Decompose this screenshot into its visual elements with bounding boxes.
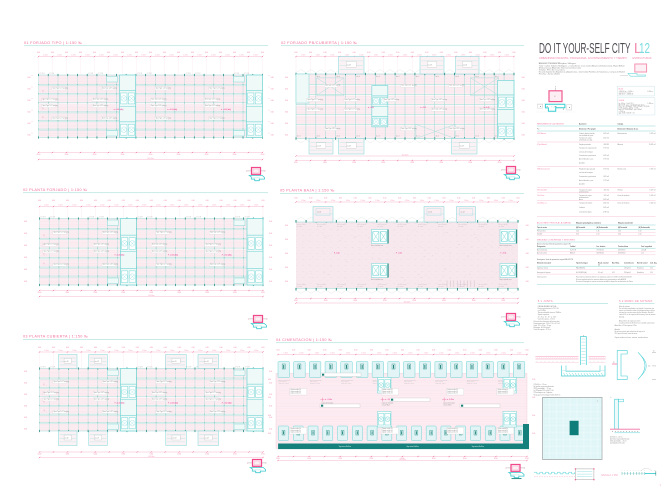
svg-text:Span Type 1-DT spacing: Span Type 1-DT spacing — [210, 381, 225, 383]
svg-text:3.00: 3.00 — [526, 239, 529, 241]
svg-text:■: ■ — [540, 106, 541, 108]
svg-text:6.00: 6.00 — [324, 198, 327, 200]
svg-text:1.50m: 1.50m — [253, 55, 258, 57]
svg-text:con losa de hormigon: con losa de hormigon — [579, 151, 593, 153]
svg-text:05 PLANTA BAJA | 1:150 ‰: 05 PLANTA BAJA | 1:150 ‰ — [280, 189, 335, 193]
svg-text:1.025 m2: 1.025 m2 — [603, 155, 609, 157]
svg-text:6.00: 6.00 — [454, 52, 457, 54]
svg-text:■: ■ — [555, 106, 556, 108]
svg-text:1.025 m2: 1.025 m2 — [603, 133, 609, 135]
svg-text:6.00: 6.00 — [206, 200, 209, 202]
svg-text:Span Type 1-DT spacing: Span Type 1-DT spacing — [205, 99, 220, 101]
svg-text:6.00: 6.00 — [339, 198, 342, 200]
svg-text:con acabado de grava: con acabado de grava — [579, 135, 593, 137]
svg-text:6.00: 6.00 — [247, 52, 250, 54]
svg-text:6.00: 6.00 — [205, 454, 209, 456]
svg-text:1.50m: 1.50m — [375, 200, 380, 202]
svg-text:275 kg/m3: 275 kg/m3 — [624, 267, 631, 269]
svg-text:Span Type 1-DT spacing: Span Type 1-DT spacing — [210, 232, 225, 234]
svg-text:Span Type 1-DT spacing: Span Type 1-DT spacing — [205, 398, 220, 400]
svg-text:3.00: 3.00 — [285, 112, 288, 114]
svg-text:DL: 45kN: DL: 45kN — [458, 226, 463, 228]
svg-text:3.00: 3.00 — [27, 89, 30, 91]
svg-text:3.00: 3.00 — [269, 245, 272, 247]
svg-text:6.00: 6.00 — [324, 300, 328, 302]
svg-text:3.00: 3.00 — [24, 417, 27, 419]
svg-text:6.00: 6.00 — [457, 198, 460, 200]
svg-text:4 T 12 R: 4 T 12 R — [234, 73, 239, 75]
svg-text:3.00: 3.00 — [269, 417, 272, 419]
svg-text:4 T 12 R: 4 T 12 R — [186, 73, 191, 75]
svg-text:DL: 45kN: DL: 45kN — [337, 226, 342, 228]
svg-text:Span Type 1-DT spacing: Span Type 1-DT spacing — [210, 411, 225, 413]
svg-text:4 T 12 R: 4 T 12 R — [89, 216, 94, 218]
svg-text:6.00: 6.00 — [276, 350, 279, 352]
svg-text:ab c d: ab c d — [455, 76, 459, 78]
svg-text:6.00: 6.00 — [121, 52, 124, 54]
svg-text:1.50m: 1.50m — [226, 205, 231, 207]
svg-text:Span Type 1-DT spacing: Span Type 1-DT spacing — [152, 244, 167, 246]
svg-text:6.00: 6.00 — [122, 454, 126, 456]
svg-text:Zonas de maderas: Zonas de maderas — [618, 195, 630, 197]
svg-text:6.00: 6.00 — [440, 52, 443, 54]
svg-text:6.00: 6.00 — [122, 292, 126, 294]
svg-text:■: ■ — [569, 107, 570, 109]
svg-text:6.00: 6.00 — [417, 350, 420, 352]
svg-text:1.50m: 1.50m — [58, 350, 63, 352]
svg-text:3.00: 3.00 — [269, 394, 272, 396]
svg-text:DL: 45kN: DL: 45kN — [418, 226, 423, 228]
svg-text:Span Type 1-DT spacing: Span Type 1-DT spacing — [152, 392, 167, 394]
svg-text:6.00: 6.00 — [65, 52, 68, 54]
svg-text:1.50: 1.50 — [44, 392, 46, 395]
svg-text:1.50m: 1.50m — [71, 55, 76, 57]
svg-text:ESCALA 1:250: ESCALA 1:250 — [602, 473, 619, 477]
svg-text:DL: 45kN: DL: 45kN — [337, 286, 342, 288]
svg-text:DL: 45kN: DL: 45kN — [398, 286, 403, 288]
svg-text:6.00: 6.00 — [121, 154, 125, 156]
svg-text:1.50m: 1.50m — [58, 205, 63, 207]
svg-text:3.00: 3.00 — [269, 221, 272, 223]
svg-text:1.50m: 1.50m — [212, 205, 217, 207]
svg-text:3.00: 3.00 — [532, 397, 535, 399]
svg-text:1.35: 1.35 — [597, 231, 600, 233]
svg-text:6.00: 6.00 — [220, 200, 223, 202]
svg-text:02 FORJADO PB/CUBIERTA | 1:150: 02 FORJADO PB/CUBIERTA | 1:150 ‰ — [281, 41, 357, 45]
svg-text:4 T 12 R: 4 T 12 R — [49, 73, 54, 75]
svg-text:25/25 profundid v – 25 cm: 25/25 profundid v – 25 cm — [610, 441, 627, 443]
svg-text:1.50m: 1.50m — [225, 55, 230, 57]
svg-text:xxx.12f: xxx.12f — [172, 438, 177, 440]
svg-text:Span Type 1-DT spacing: Span Type 1-DT spacing — [94, 392, 109, 394]
svg-text:680.325: 680.325 — [604, 144, 609, 146]
svg-text:6.00: 6.00 — [398, 198, 401, 200]
svg-text:1.50m: 1.50m — [113, 55, 118, 57]
svg-text:4 T 12 R: 4 T 12 R — [88, 73, 93, 75]
svg-text:⚑ -3.45m: ⚑ -3.45m — [447, 398, 455, 401]
svg-text:1.50m: 1.50m — [449, 200, 454, 202]
svg-text:■: ■ — [563, 109, 564, 111]
svg-text:Span Type 1-DT spacing: Span Type 1-DT spacing — [210, 264, 225, 266]
svg-text:03 PLANTA CUBIERTA | 1:150 ‰: 03 PLANTA CUBIERTA | 1:150 ‰ — [23, 335, 88, 339]
svg-text:Span Type 1-DT spacing: Span Type 1-DT spacing — [432, 109, 447, 111]
svg-text:ESTRUCTURAS: ESTRUCTURAS — [633, 56, 652, 60]
svg-text:4 T 12 R: 4 T 12 R — [138, 216, 143, 218]
svg-text:6.00: 6.00 — [354, 350, 357, 352]
svg-text:3.00: 3.00 — [285, 253, 288, 255]
svg-text:6.00: 6.00 — [135, 52, 138, 54]
svg-text:ab c d: ab c d — [317, 136, 321, 138]
svg-text:6.00: 6.00 — [66, 292, 70, 294]
svg-text:4 T 12 R: 4 T 12 R — [147, 216, 152, 218]
svg-text:275 N/mm2: 275 N/mm2 — [597, 250, 605, 252]
svg-text:Span Type 1-DT spacing: Span Type 1-DT spacing — [209, 117, 224, 119]
svg-text:1.50m: 1.50m — [240, 205, 245, 207]
svg-text:3.00: 3.00 — [269, 383, 272, 385]
svg-text:ab c d: ab c d — [475, 136, 479, 138]
svg-text:Coef. Seg.: Coef. Seg. — [650, 262, 657, 264]
svg-text:(a) 25/pedra 25% calid: (a) 25/pedra 25% calid — [610, 443, 625, 445]
svg-text:6.00: 6.00 — [516, 198, 519, 200]
svg-text:DL: 45kN: DL: 45kN — [499, 286, 504, 288]
svg-text:Span Type 1-DT spacing: Span Type 1-DT spacing — [151, 105, 166, 107]
svg-text:Span Type 1-DT spacing: Span Type 1-DT spacing — [156, 381, 171, 383]
svg-text:Span Type 1-DT spacing: Span Type 1-DT spacing — [43, 244, 58, 246]
svg-text:6.00: 6.00 — [164, 200, 167, 202]
svg-text:1.50m: 1.50m — [72, 350, 77, 352]
svg-text:6.00: 6.00 — [233, 454, 237, 456]
svg-text:6.00: 6.00 — [192, 200, 195, 202]
svg-text:3.00: 3.00 — [27, 77, 30, 79]
svg-text:Zonas de maderas: Zonas de maderas — [618, 203, 630, 205]
svg-text:xxx.12f: xxx.12f — [95, 361, 100, 363]
svg-text:ACCIONES: PESOS A LA CARGA: ACCIONES: PESOS A LA CARGA — [537, 222, 571, 225]
svg-text:1.025 m2: 1.025 m2 — [603, 207, 609, 209]
svg-text:3.00: 3.00 — [285, 123, 288, 125]
svg-text:1.50m: 1.50m — [183, 55, 188, 57]
svg-text:DL: 45kN: DL: 45kN — [418, 286, 423, 288]
svg-text:1.50m: 1.50m — [301, 55, 306, 57]
svg-text:6.00: 6.00 — [150, 292, 154, 294]
svg-text:3.00: 3.00 — [269, 281, 272, 283]
svg-text:6.00: 6.00 — [234, 200, 237, 202]
svg-text:6.00: 6.00 — [122, 347, 125, 349]
svg-text:uniformado a los kgs: uniformado a los kgs — [579, 140, 593, 142]
svg-text:25: 25 — [613, 362, 615, 364]
svg-text:Span Type 1-DT spacing: Span Type 1-DT spacing — [54, 411, 69, 413]
svg-text:Span Type 1-DT spacing: Span Type 1-DT spacing — [156, 411, 171, 413]
svg-text:ab c d: ab c d — [396, 76, 400, 78]
svg-text:Span Type 1-DT spacing: Span Type 1-DT spacing — [205, 105, 220, 107]
svg-text:1.50m: 1.50m — [57, 55, 62, 57]
svg-text:Traspaso de cargas: Traspaso de cargas — [579, 137, 592, 139]
svg-text:04 CIMENTACION | 1:150 ‰: 04 CIMENTACION | 1:150 ‰ — [276, 338, 332, 342]
svg-text:6.00: 6.00 — [463, 350, 466, 352]
svg-text:105.00m: 105.00m — [402, 154, 409, 156]
svg-text:Traspaso de cargas: Traspaso de cargas — [579, 195, 592, 197]
svg-text:1.50m: 1.50m — [346, 353, 351, 355]
svg-text:xxx.12f: xxx.12f — [347, 65, 352, 67]
svg-text:3.00: 3.00 — [269, 406, 272, 408]
svg-text:Span Type 1-DT spacing: Span Type 1-DT spacing — [384, 99, 399, 101]
svg-text:1.50m: 1.50m — [508, 200, 513, 202]
svg-text:6.00: 6.00 — [383, 300, 387, 302]
svg-text:6.00: 6.00 — [472, 300, 476, 302]
svg-text:6.00: 6.00 — [247, 347, 250, 349]
svg-text:3.00: 3.00 — [24, 233, 27, 235]
svg-text:6.00: 6.00 — [234, 347, 237, 349]
svg-text:6.00: 6.00 — [150, 347, 153, 349]
svg-text:1.025 m2: 1.025 m2 — [603, 199, 609, 201]
svg-text:09.2 Desvielle: 09.2 Desvielle — [537, 190, 547, 192]
svg-text:4 T 12 R: 4 T 12 R — [99, 216, 104, 218]
svg-text:3.00: 3.00 — [27, 100, 30, 102]
svg-text:HL-150/B/20 (db): HL-150/B/20 (db) — [576, 272, 587, 274]
svg-text:1.50m: 1.50m — [299, 353, 304, 355]
svg-text:6.00: 6.00 — [94, 347, 97, 349]
svg-text:6.00: 6.00 — [309, 52, 312, 54]
svg-text:6.00: 6.00 — [178, 200, 181, 202]
svg-text:xxx.12f: xxx.12f — [347, 146, 352, 148]
svg-text:1.50m: 1.50m — [254, 205, 259, 207]
svg-text:Span Type 1-DT spacing: Span Type 1-DT spacing — [42, 99, 57, 101]
svg-text:4 T 12 R: 4 T 12 R — [235, 216, 240, 218]
svg-text:1.50m: 1.50m — [408, 353, 413, 355]
svg-text:6.00: 6.00 — [510, 350, 513, 352]
svg-text:6.00: 6.00 — [368, 198, 371, 200]
svg-text:1.50m: 1.50m — [390, 200, 395, 202]
svg-text:Span Type 1-DT spacing: Span Type 1-DT spacing — [42, 105, 57, 107]
svg-text:Span Type 1-DT spacing: Span Type 1-DT spacing — [401, 128, 416, 130]
svg-text:1.50m: 1.50m — [114, 350, 119, 352]
svg-text:6.00: 6.00 — [66, 200, 69, 202]
svg-text:4 T 12 R: 4 T 12 R — [147, 73, 152, 75]
svg-text:Oficinas: Oficinas — [618, 190, 623, 192]
svg-text:⚑ -3.45m: ⚑ -3.45m — [325, 398, 333, 401]
svg-text:1.50m: 1.50m — [72, 205, 77, 207]
svg-text:1.50m: 1.50m — [156, 350, 161, 352]
svg-text:6.00: 6.00 — [206, 347, 209, 349]
svg-text:plausible: plausible — [579, 162, 585, 164]
svg-text:6.00: 6.00 — [52, 200, 55, 202]
svg-text:6.00: 6.00 — [177, 292, 181, 294]
svg-text:6.00: 6.00 — [38, 454, 42, 456]
svg-text:6.00: 6.00 — [38, 292, 42, 294]
svg-text:1.50m: 1.50m — [316, 200, 321, 202]
svg-text:6.00: 6.00 — [498, 52, 501, 54]
svg-text:1.50m: 1.50m — [315, 353, 320, 355]
svg-text:3.00: 3.00 — [269, 269, 272, 271]
svg-text:3.00: 3.00 — [522, 135, 525, 137]
svg-text:ab c d: ab c d — [436, 76, 440, 78]
svg-text:Span Type 1-DT spacing: Span Type 1-DT spacing — [102, 117, 117, 119]
svg-text:6.00: 6.00 — [396, 52, 399, 54]
svg-text:6.00: 6.00 — [150, 200, 153, 202]
svg-text:3.00: 3.00 — [285, 100, 288, 102]
svg-text:xxx.12f: xxx.12f — [205, 361, 210, 363]
svg-text:3.00: 3.00 — [24, 257, 27, 259]
svg-text:1.50m: 1.50m — [127, 55, 132, 57]
svg-text:Fecha: Junio 2016: Fecha: Junio 2016 — [539, 73, 560, 75]
svg-text:1.50: 1.50 — [44, 262, 46, 265]
svg-text:Span Type 1-DT spacing: Span Type 1-DT spacing — [156, 232, 171, 234]
svg-text:1.50m: 1.50m — [479, 200, 484, 202]
svg-text:qad: 25.66 · 625 kN · m2: qad: 25.66 · 625 kN · m2 — [619, 113, 635, 115]
svg-text:Span Type 1-DT spacing: Span Type 1-DT spacing — [151, 99, 166, 101]
svg-text:6.00: 6.00 — [178, 347, 181, 349]
svg-text:Traspaso de madera: Traspaso de madera — [579, 203, 592, 205]
svg-text:6.00: 6.00 — [382, 52, 385, 54]
svg-text:RESUMEN DE LA SESION: RESUMEN DE LA SESION — [537, 123, 564, 126]
svg-text:B500-S: B500-S — [570, 253, 575, 255]
svg-text:3.00: 3.00 — [269, 257, 272, 259]
svg-text:1.50m: 1.50m — [99, 55, 104, 57]
svg-text:6.00: 6.00 — [323, 350, 326, 352]
svg-text:DO IT YOUR-SELF CITY: DO IT YOUR-SELF CITY — [539, 40, 631, 57]
svg-text:3.00: 3.00 — [532, 415, 535, 417]
svg-text:Traspaso de carga por pale: Traspaso de carga por pale — [579, 148, 597, 150]
svg-text:Hormigon de limpieza: Hormigon de limpieza — [537, 272, 551, 274]
svg-text:3.00: 3.00 — [526, 281, 529, 283]
svg-text:3.00: 3.00 — [522, 100, 525, 102]
svg-text:6.00: 6.00 — [525, 458, 529, 460]
svg-text:3.00: 3.00 — [285, 77, 288, 79]
svg-text:1.50m: 1.50m — [420, 200, 425, 202]
svg-text:6.00: 6.00 — [93, 154, 97, 156]
svg-text:4 T 12 R: 4 T 12 R — [196, 216, 201, 218]
svg-text:Span Type 1-DT spacing: Span Type 1-DT spacing — [480, 99, 495, 101]
svg-text:Forjado de vigas por pale: Forjado de vigas por pale — [579, 168, 595, 170]
svg-text:1.50m: 1.50m — [439, 353, 444, 355]
svg-text:Designacion: Designacion — [537, 246, 546, 248]
svg-text:Span Type 1-DT spacing: Span Type 1-DT spacing — [156, 264, 171, 266]
svg-text:1.50m: 1.50m — [284, 353, 289, 355]
svg-text:6.00: 6.00 — [261, 52, 264, 54]
svg-text:3.00: 3.00 — [271, 100, 274, 102]
svg-text:1.50: 1.50 — [650, 272, 653, 274]
svg-text:6.00: 6.00 — [525, 350, 528, 352]
svg-text:DL: 45kN: DL: 45kN — [357, 286, 362, 288]
svg-text:DL: 45kN: DL: 45kN — [438, 226, 443, 228]
svg-text:3.00: 3.00 — [285, 281, 288, 283]
svg-text:6.00: 6.00 — [512, 52, 515, 54]
svg-text:Span Type 1-DT spacing: Span Type 1-DT spacing — [205, 392, 220, 394]
svg-text:6.00: 6.00 — [385, 350, 388, 352]
svg-text:DL: 45kN: DL: 45kN — [478, 226, 483, 228]
svg-text:6.00: 6.00 — [177, 454, 181, 456]
svg-text:3.00: 3.00 — [268, 415, 271, 417]
svg-text:xxx.12f: xxx.12f — [317, 146, 322, 148]
svg-text:6.00: 6.00 — [502, 198, 505, 200]
svg-text:1.50m: 1.50m — [240, 350, 245, 352]
svg-text:1.50m: 1.50m — [170, 205, 175, 207]
svg-text:1.50m: 1.50m — [361, 353, 366, 355]
svg-text:ab c d: ab c d — [455, 136, 459, 138]
svg-text:1.50m: 1.50m — [374, 55, 379, 57]
svg-text:1.50m: 1.50m — [86, 350, 91, 352]
svg-text:3.00: 3.00 — [268, 397, 271, 399]
svg-text:6.00: 6.00 — [177, 154, 181, 156]
svg-text:ab c d: ab c d — [356, 76, 360, 78]
svg-text:6.00: 6.00 — [80, 347, 83, 349]
svg-text:4 T 12 R: 4 T 12 R — [235, 366, 240, 368]
svg-text:0.55: 0.55 — [612, 272, 615, 274]
svg-text:xxx.12f: xxx.12f — [64, 361, 69, 363]
svg-text:Span Type 1-DT spacing: Span Type 1-DT spacing — [152, 250, 167, 252]
svg-text:DL: 45kN: DL: 45kN — [438, 286, 443, 288]
svg-text:1.50m: 1.50m — [86, 205, 91, 207]
svg-text:1.00: 1.00 — [639, 233, 642, 235]
svg-text:3.00: 3.00 — [271, 112, 274, 114]
svg-text:6.00: 6.00 — [233, 292, 237, 294]
svg-text:500 N/mm2: 500 N/mm2 — [597, 253, 605, 255]
svg-text:4 T 12 R: 4 T 12 R — [245, 216, 250, 218]
svg-text:3.00: 3.00 — [24, 281, 27, 283]
svg-text:4 T 12 R: 4 T 12 R — [186, 216, 191, 218]
svg-text:6.00: 6.00 — [501, 300, 505, 302]
svg-text:1.50m: 1.50m — [155, 55, 160, 57]
svg-text:6.00: 6.00 — [324, 52, 327, 54]
svg-text:xxx.12f: xxx.12f — [428, 65, 433, 67]
svg-text:6.00: 6.00 — [442, 300, 446, 302]
svg-text:6.00: 6.00 — [108, 200, 111, 202]
svg-text:6.00: 6.00 — [463, 458, 467, 460]
svg-text:3.00: 3.00 — [285, 135, 288, 137]
svg-text:6.00: 6.00 — [192, 347, 195, 349]
svg-text:1.50m: 1.50m — [446, 55, 451, 57]
svg-text:q = 25 kN/m: q = 25 kN/m — [538, 310, 547, 312]
svg-text:6.00: 6.00 — [294, 198, 297, 200]
svg-text:Span Type 1-DT spacing: Span Type 1-DT spacing — [102, 87, 117, 89]
svg-text:6.00: 6.00 — [338, 52, 341, 54]
svg-text:min: min — [648, 366, 650, 368]
svg-text:ab c d: ab c d — [416, 76, 420, 78]
svg-text:6.00: 6.00 — [205, 52, 208, 54]
svg-text:1.50m: 1.50m — [301, 200, 306, 202]
svg-text:MEDIDAS CONCRETAS Y SESIONES: MEDIDAS CONCRETAS Y SESIONES — [537, 239, 575, 242]
svg-text:1.025 m2: 1.025 m2 — [603, 176, 609, 178]
svg-text:3.00: 3.00 — [24, 429, 27, 431]
svg-text:6.00: 6.00 — [442, 198, 445, 200]
svg-text:1.50m: 1.50m — [212, 350, 217, 352]
svg-text:6.00: 6.00 — [309, 198, 312, 200]
svg-text:1.50m: 1.50m — [470, 353, 475, 355]
svg-text:6.00: 6.00 — [339, 350, 342, 352]
svg-text:DL: 45kN: DL: 45kN — [478, 286, 483, 288]
svg-text:6.00: 6.00 — [52, 347, 55, 349]
svg-text:6.00: 6.00 — [294, 162, 298, 164]
svg-text:3.00: 3.00 — [526, 225, 529, 227]
svg-text:1.50m: 1.50m — [405, 200, 410, 202]
svg-text:1.50: 1.50 — [44, 401, 46, 404]
svg-text:105.00m: 105.00m — [148, 456, 155, 458]
svg-text:Span Type 1-DT spacing: Span Type 1-DT spacing — [205, 250, 220, 252]
svg-text:DL: 45kN: DL: 45kN — [297, 226, 302, 228]
svg-text:Span Type 1-DT spacing: Span Type 1-DT spacing — [345, 99, 360, 101]
svg-text:1.50m: 1.50m — [142, 205, 147, 207]
svg-text:3.00: 3.00 — [271, 123, 274, 125]
svg-text:Span Type 1-DT spacing: Span Type 1-DT spacing — [401, 85, 416, 87]
svg-text:1.50: 1.50 — [44, 383, 46, 386]
svg-text:1.50m: 1.50m — [169, 55, 174, 57]
svg-text:105.00m: 105.00m — [147, 158, 154, 160]
svg-text:1.00: 1.00 — [639, 231, 642, 233]
svg-text:1.50m: 1.50m — [505, 55, 510, 57]
svg-text:3.00: 3.00 — [24, 383, 27, 385]
svg-text:0.00: 0.00 — [576, 233, 579, 235]
svg-text:3.00: 3.00 — [24, 245, 27, 247]
svg-text:1.50m: 1.50m — [197, 55, 202, 57]
